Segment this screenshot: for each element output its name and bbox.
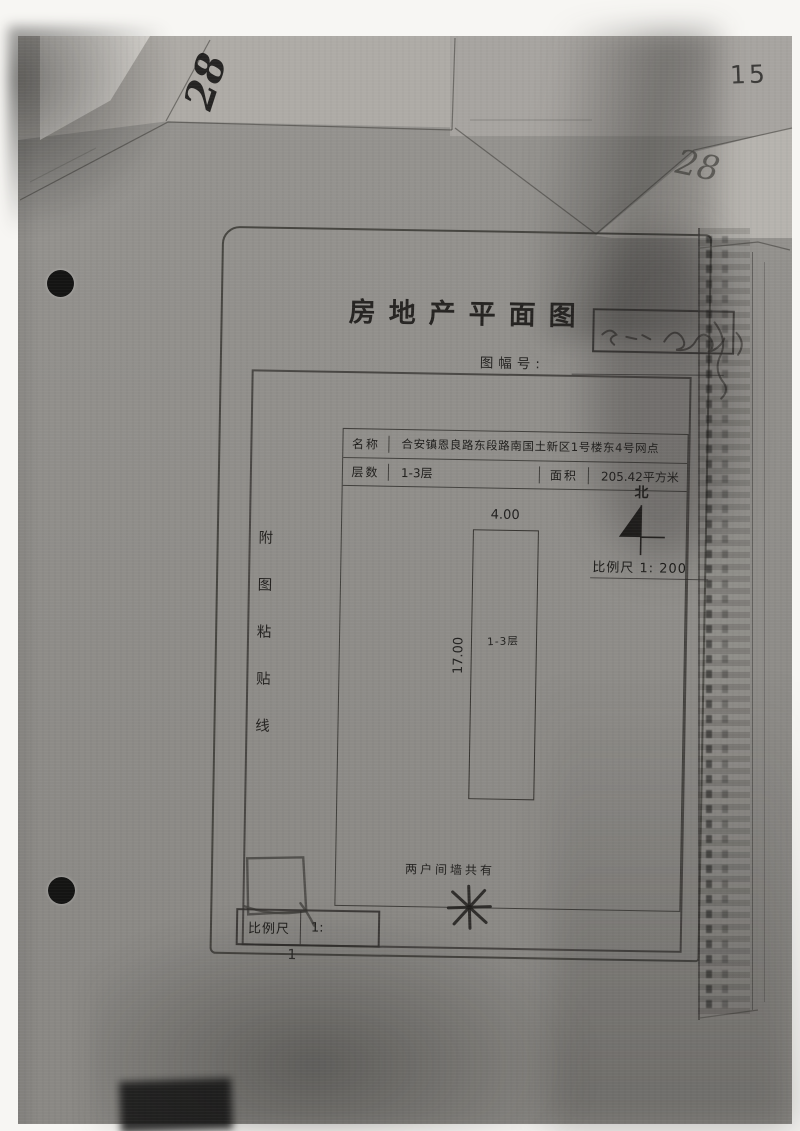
- paste-line-char: 图: [258, 573, 273, 594]
- footer-page-mark: 1: [287, 947, 296, 963]
- hole-punch: [48, 877, 75, 904]
- paste-line-char: 附: [258, 526, 273, 547]
- shared-wall-note: 两户间墙共有: [405, 860, 495, 879]
- page-edge-line: [752, 252, 753, 1010]
- building-floors-label: 1-3层: [467, 633, 539, 651]
- floors-label: 层数: [343, 463, 389, 481]
- form-title: 房地产平面图: [348, 290, 589, 333]
- paste-line-char: 线: [255, 714, 270, 735]
- plan-width-dimension: 4.00: [473, 507, 537, 523]
- smudged-text-column: [706, 236, 712, 1008]
- handwritten-number-top-right: 28: [672, 142, 723, 190]
- sheet-number-label: 图幅号:: [480, 351, 545, 372]
- footer-scale-label: 比例尺: [238, 910, 302, 944]
- name-value: 合安镇恩良路东段路南国土新区1号楼东4号网点: [389, 436, 687, 457]
- paste-line-char: 粘: [257, 620, 272, 641]
- north-arrow-icon: [612, 501, 669, 562]
- smudged-text-column: [722, 236, 728, 1008]
- footer-scale-box: 比例尺 1:: [236, 908, 381, 948]
- page-number: 15: [730, 59, 769, 89]
- floors-value: 1-3层: [389, 464, 539, 484]
- footer-scale-value: 1:: [301, 920, 324, 935]
- north-label: 北: [629, 482, 653, 502]
- area-label: 面积: [539, 466, 589, 484]
- floor-plan-form-sheet: 房地产平面图 图幅号: 附 图 粘 贴 线 名称: [210, 226, 713, 962]
- building-outline: [468, 529, 539, 800]
- plan-height-dimension: 17.00: [451, 627, 467, 683]
- scanned-document-page: 15 28 28 房地产平面图 图幅号: 附 图 粘 贴 线: [0, 0, 800, 1131]
- x-mark-scribble-icon: [446, 884, 493, 931]
- hole-punch: [47, 270, 74, 297]
- scale-text: 比例尺 1: 200: [592, 556, 687, 577]
- paste-line-vertical-label: 附 图 粘 贴 线: [249, 526, 279, 735]
- page-edge-line: [764, 262, 765, 1002]
- name-label: 名称: [343, 434, 389, 452]
- paste-line-char: 贴: [256, 667, 271, 688]
